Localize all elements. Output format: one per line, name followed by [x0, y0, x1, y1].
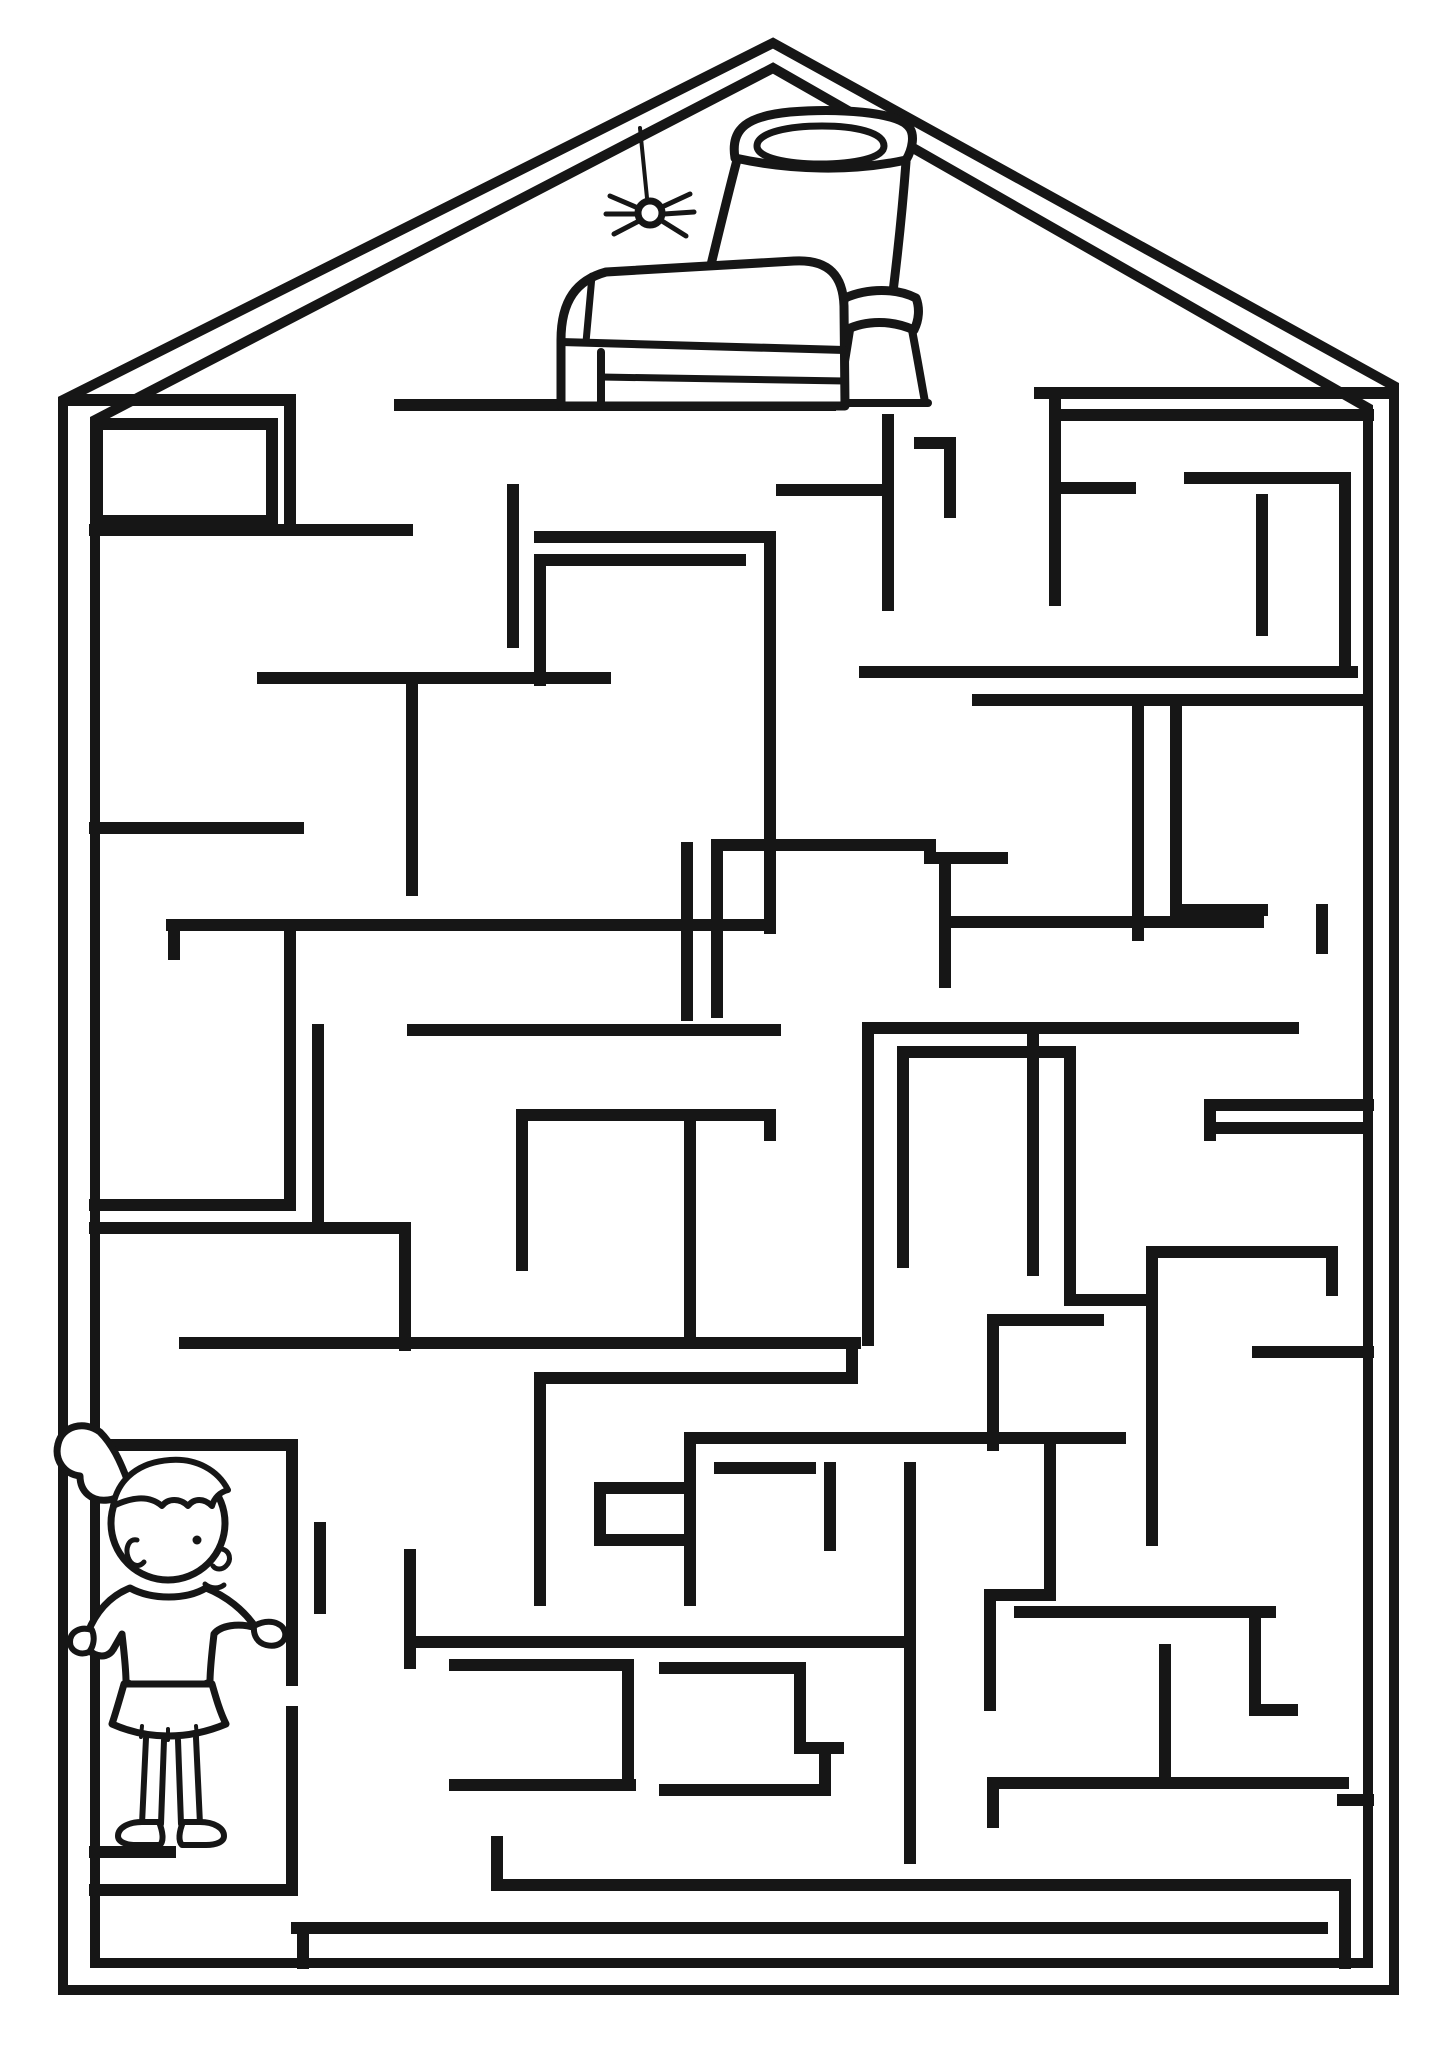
spider-leg	[614, 221, 639, 234]
girl-hair-fringe	[113, 1460, 228, 1506]
girl-shirt	[86, 1588, 256, 1691]
spider-leg	[662, 194, 690, 207]
girl-left-shoe	[118, 1822, 163, 1845]
girl-eye	[193, 1536, 202, 1545]
girl-leg-outline	[161, 1740, 164, 1824]
spider-leg	[662, 221, 686, 236]
chest-front-band	[601, 377, 845, 381]
pot-neck-right	[912, 330, 925, 402]
spider-leg	[664, 212, 694, 214]
girl-left-hand	[70, 1629, 94, 1654]
pot-right-side	[892, 162, 906, 300]
treasure-chest	[561, 261, 845, 406]
girl-leg-outline	[178, 1740, 181, 1824]
spider-body	[638, 201, 662, 225]
pot-collar-ring	[842, 291, 918, 331]
maze-svg	[0, 0, 1448, 2048]
maze-worksheet-page	[0, 0, 1448, 2048]
maze-walls	[70, 393, 1385, 1963]
girl-leg-outline	[142, 1738, 146, 1824]
girl-right-shoe	[179, 1822, 224, 1845]
girl-right-hand	[254, 1622, 285, 1646]
girl-skirt-pleat	[141, 1726, 142, 1737]
girl-leg-outline	[196, 1738, 200, 1824]
spider-leg	[610, 196, 638, 208]
